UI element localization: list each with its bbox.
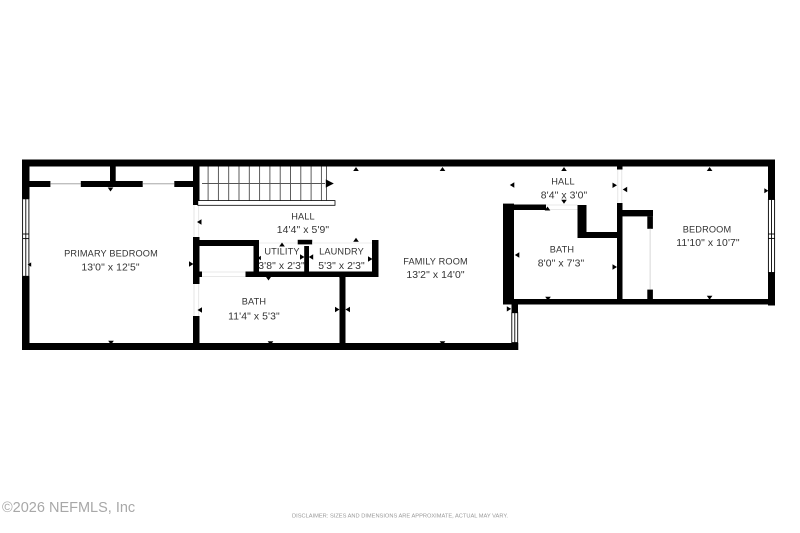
svg-text:13'2" x 14'0": 13'2" x 14'0" (406, 270, 464, 281)
svg-text:©2026 NEFMLS, Inc: ©2026 NEFMLS, Inc (2, 500, 135, 516)
svg-text:BATH: BATH (242, 297, 266, 307)
svg-text:8'0" x 7'3": 8'0" x 7'3" (538, 258, 585, 269)
svg-text:LAUNDRY: LAUNDRY (319, 247, 364, 257)
svg-text:3'8" x 2'3": 3'8" x 2'3" (258, 261, 305, 272)
svg-text:HALL: HALL (551, 177, 575, 187)
svg-text:11'10" x 10'7": 11'10" x 10'7" (676, 238, 740, 249)
svg-text:FAMILY ROOM: FAMILY ROOM (403, 257, 468, 267)
svg-text:13'0" x 12'5": 13'0" x 12'5" (81, 262, 139, 273)
svg-text:11'4" x 5'3": 11'4" x 5'3" (228, 311, 280, 322)
svg-text:14'4" x 5'9": 14'4" x 5'9" (277, 225, 330, 236)
svg-text:PRIMARY BEDROOM: PRIMARY BEDROOM (64, 249, 158, 259)
svg-text:8'4" x 3'0": 8'4" x 3'0" (541, 190, 588, 201)
svg-text:DISCLAIMER: SIZES AND DIMENSIO: DISCLAIMER: SIZES AND DIMENSIONS ARE APP… (292, 514, 508, 520)
svg-text:UTILITY: UTILITY (264, 247, 299, 257)
svg-text:5'3" x 2'3": 5'3" x 2'3" (318, 261, 365, 272)
svg-text:BEDROOM: BEDROOM (683, 225, 732, 235)
svg-text:BATH: BATH (550, 245, 574, 255)
svg-text:HALL: HALL (291, 212, 315, 222)
